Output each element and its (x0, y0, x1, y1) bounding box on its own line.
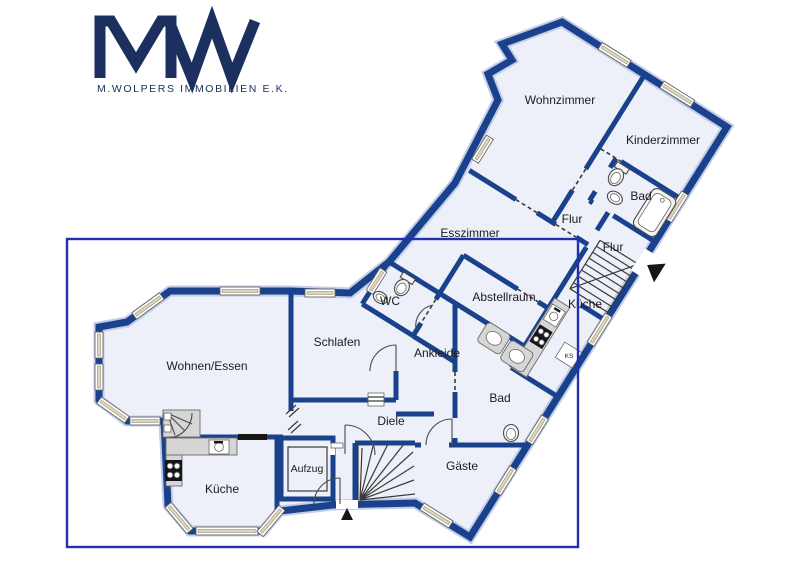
window (196, 527, 258, 535)
appliance-label-ks: KS (565, 353, 574, 360)
window (95, 332, 103, 358)
toilet-icon (504, 425, 519, 442)
room-label-wohnen-essen: Wohnen/Essen (166, 359, 247, 373)
kitchen-sink-icon (209, 440, 229, 454)
room-label-wohnzimmer: Wohnzimmer (525, 93, 595, 107)
room-label-gaeste: Gäste (446, 459, 478, 473)
room-label-kueche-eg: Küche (205, 482, 239, 496)
logo-m-glyph (100, 21, 171, 78)
window (305, 289, 335, 297)
fireplace (163, 410, 200, 438)
threshold-bar (238, 434, 267, 440)
room-label-flur-b: Flur (603, 240, 624, 254)
room-label-schlafen: Schlafen (314, 335, 361, 349)
logo: M.WOLPERS IMMOBILIEN E.K. (97, 21, 289, 95)
room-label-wc: WC (380, 294, 400, 308)
room-label-flur-a: Flur (562, 212, 583, 226)
window (95, 364, 103, 390)
room-label-diele: Diele (377, 414, 405, 428)
logo-company-name: M.WOLPERS IMMOBILIEN E.K. (97, 83, 289, 95)
stove-icon (165, 460, 182, 481)
logo-w-glyph (169, 21, 255, 78)
room-label-bad-eg: Bad (489, 391, 510, 405)
room-label-ankleide: Ankleide (414, 346, 460, 360)
room-label-kinderzimmer: Kinderzimmer (626, 133, 700, 147)
window (220, 287, 260, 295)
room-label-abstellraum: Abstellraum (472, 290, 535, 304)
window (130, 417, 160, 425)
room-label-bad-og: Bad (630, 189, 651, 203)
room-label-kueche-og: Küche (568, 297, 602, 311)
radiator (368, 393, 384, 406)
floorplan-page: M.WOLPERS IMMOBILIEN E.K. (0, 0, 799, 565)
room-label-aufzug: Aufzug (291, 463, 324, 475)
